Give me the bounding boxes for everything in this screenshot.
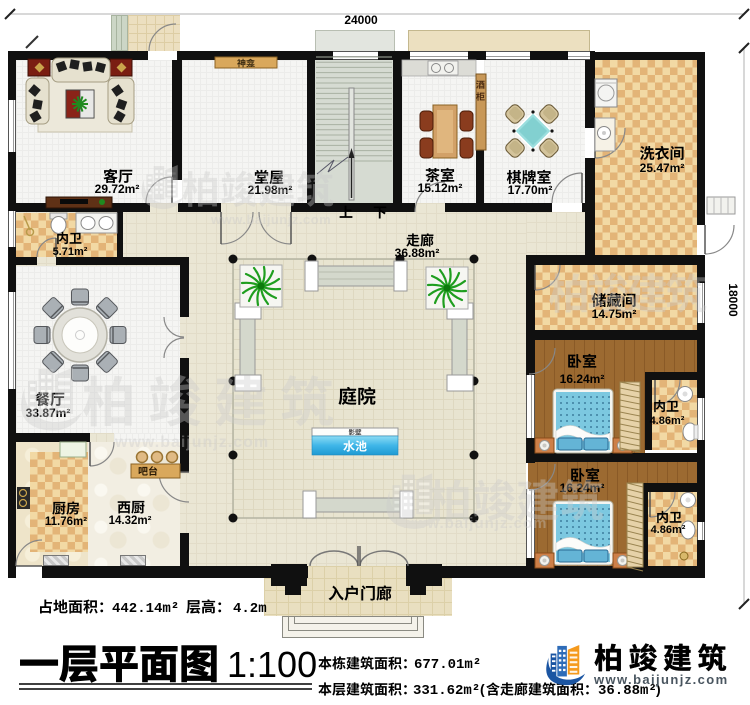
svg-text:15.12m²: 15.12m² [418,181,463,195]
svg-text:14.32m²: 14.32m² [109,515,152,527]
svg-text:25.47m²: 25.47m² [640,161,685,175]
svg-text:18000: 18000 [726,283,740,317]
svg-text:www.baijunjz.com: www.baijunjz.com [593,672,729,687]
svg-text:5.71m²: 5.71m² [53,246,88,258]
svg-text:17.70m²: 17.70m² [508,183,553,197]
svg-text:29.72m²: 29.72m² [95,182,140,196]
svg-text:www.baijunjz.com: www.baijunjz.com [401,515,547,532]
svg-text:442.14m²: 442.14m² [112,601,179,617]
svg-text:www.baijunjz.com: www.baijunjz.com [210,212,331,227]
svg-text:4.86m²: 4.86m² [650,415,685,427]
svg-text:677.01m²: 677.01m² [414,657,481,673]
svg-text:1:100: 1:100 [227,644,317,685]
svg-text:24000: 24000 [344,13,378,27]
svg-text:(: ( [480,681,485,697]
svg-text:www.baijunjz.com: www.baijunjz.com [114,434,269,451]
svg-text:11.76m²: 11.76m² [45,516,87,528]
svg-text:331.62m²: 331.62m² [413,683,480,699]
svg-text:16.24m²: 16.24m² [560,372,605,386]
svg-text:36.88m²: 36.88m² [395,246,440,260]
svg-text:4.2m: 4.2m [233,601,267,617]
svg-text:4.86m²: 4.86m² [651,524,686,536]
